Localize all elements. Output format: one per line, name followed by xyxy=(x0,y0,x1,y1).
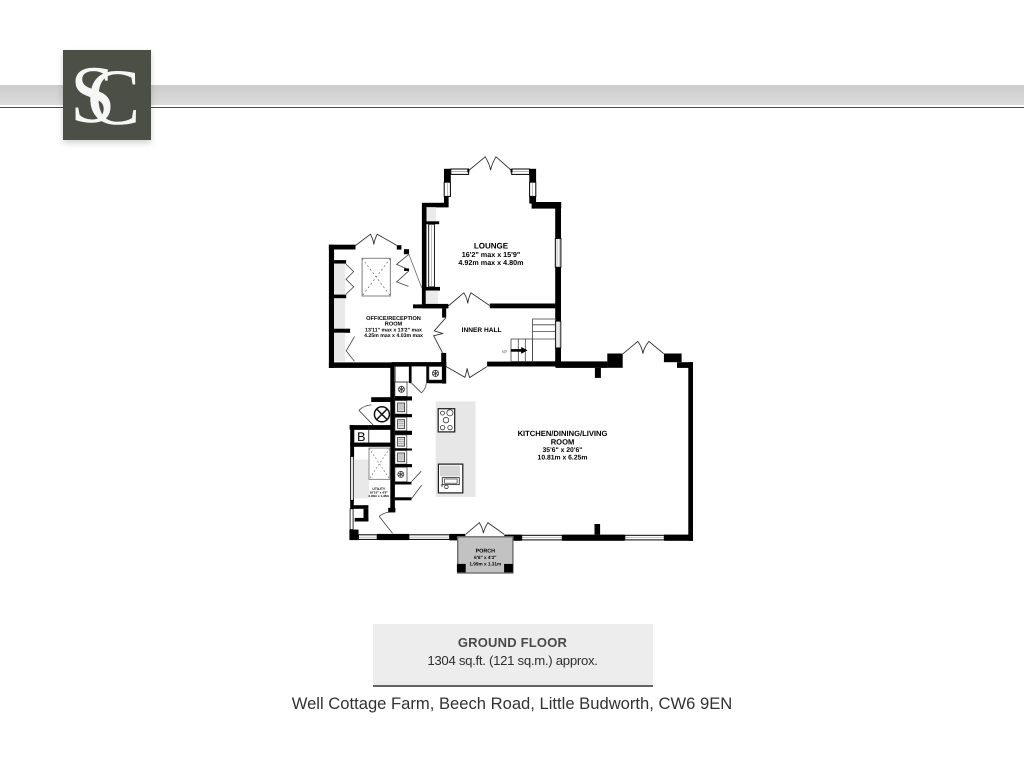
svg-text:PORCH: PORCH xyxy=(476,549,496,555)
svg-text:B: B xyxy=(357,430,365,444)
svg-text:ROOM: ROOM xyxy=(551,437,575,446)
svg-text:4.92m max x 4.80m: 4.92m max x 4.80m xyxy=(458,258,523,267)
svg-text:4.25m max x 4.03m max: 4.25m max x 4.03m max xyxy=(364,333,423,339)
svg-text:10.81m x 6.25m: 10.81m x 6.25m xyxy=(538,455,588,462)
svg-text:3.30m x 1.45m: 3.30m x 1.45m xyxy=(368,494,389,498)
svg-text:1.99m x 1.31m: 1.99m x 1.31m xyxy=(469,561,501,566)
svg-text:up: up xyxy=(502,348,507,353)
svg-text:35'6" x 20'6": 35'6" x 20'6" xyxy=(543,447,583,454)
svg-text:INNER HALL: INNER HALL xyxy=(462,327,502,334)
svg-text:6'6" x 4'3": 6'6" x 4'3" xyxy=(474,555,496,560)
